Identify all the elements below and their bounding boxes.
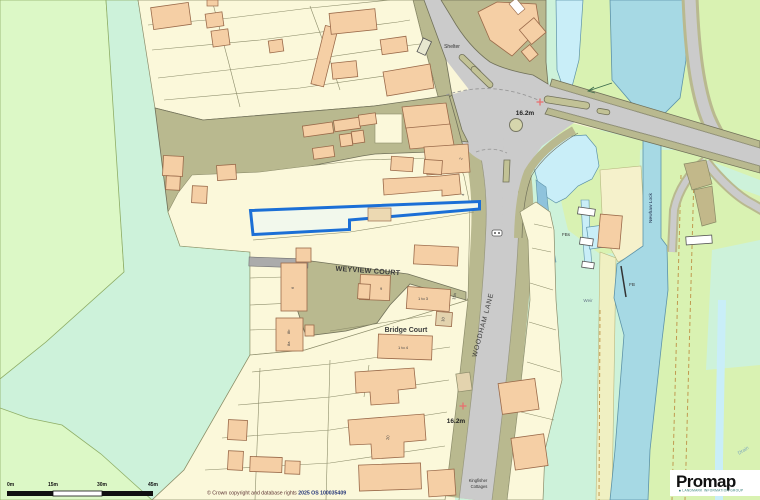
- svg-text:30m: 30m: [97, 482, 108, 488]
- svg-text:8b: 8b: [286, 329, 291, 334]
- svg-text:■ LANDMARK INFORMATION GROUP: ■ LANDMARK INFORMATION GROUP: [679, 489, 743, 493]
- svg-text:16.2m: 16.2m: [516, 110, 535, 117]
- svg-text:16.2m: 16.2m: [447, 418, 466, 425]
- svg-text:Weir: Weir: [583, 298, 593, 303]
- svg-text:© Crown copyright and database: © Crown copyright and database rights 20…: [207, 490, 346, 497]
- svg-text:15m: 15m: [48, 482, 59, 488]
- svg-text:8a: 8a: [286, 341, 291, 346]
- svg-text:45m: 45m: [148, 482, 159, 488]
- svg-text:Cottages: Cottages: [471, 484, 488, 489]
- svg-text:Bridge Court: Bridge Court: [385, 327, 428, 334]
- svg-text:FBs: FBs: [562, 232, 571, 237]
- svg-text:1 to 4: 1 to 4: [398, 345, 409, 350]
- svg-text:Shelter: Shelter: [444, 44, 460, 50]
- svg-text:0m: 0m: [7, 482, 15, 488]
- svg-text:FB: FB: [629, 282, 635, 287]
- svg-text:Kingfisher: Kingfisher: [469, 478, 488, 483]
- svg-text:Newhaw Lock: Newhaw Lock: [648, 192, 654, 222]
- svg-text:1 to 3: 1 to 3: [418, 296, 429, 301]
